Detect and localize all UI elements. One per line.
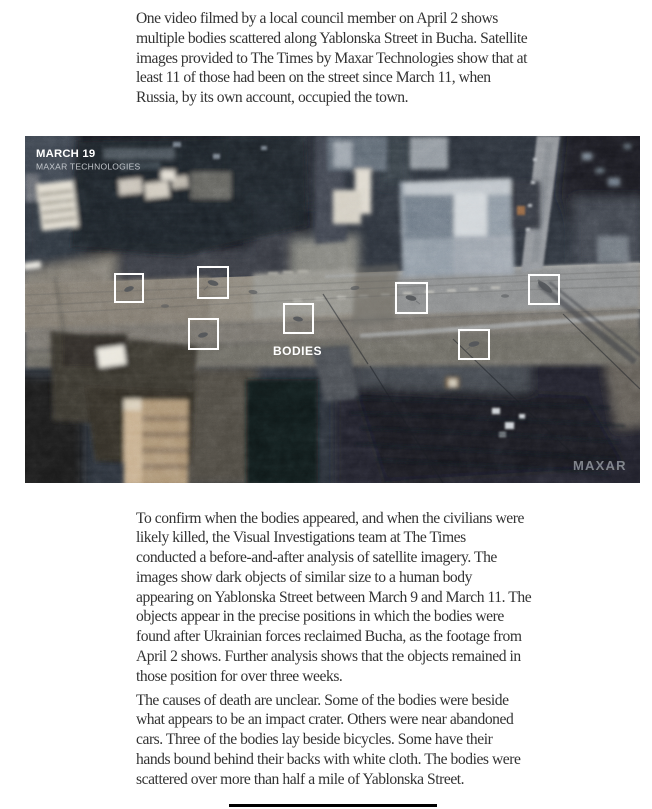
svg-text:MAXAR TECHNOLOGIES: MAXAR TECHNOLOGIES <box>36 162 141 172</box>
svg-text:MARCH 19: MARCH 19 <box>36 148 95 160</box>
svg-text:BODIES: BODIES <box>273 344 322 358</box>
svg-text:MAXAR: MAXAR <box>573 458 627 473</box>
